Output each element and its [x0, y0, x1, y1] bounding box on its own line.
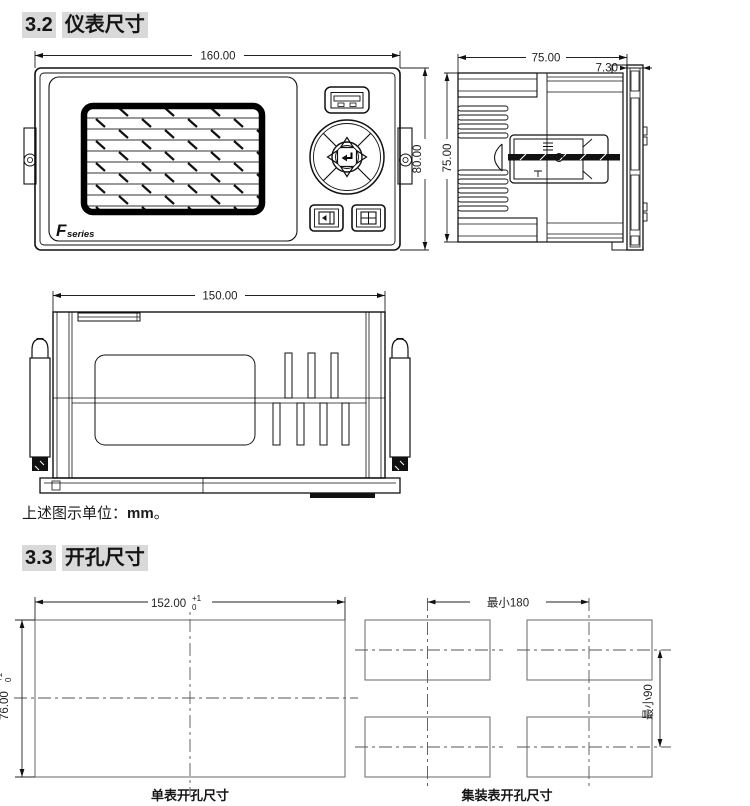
terminal-fins [458, 106, 508, 211]
vent-slots-lower [273, 403, 349, 445]
unit-note-suffix: 。 [154, 505, 169, 522]
cutout-width-label: 152.00 [151, 598, 186, 610]
section-title: 仪表尺寸 [62, 12, 148, 38]
front-view-drawing: 160.00 80.00 F series [20, 40, 440, 265]
mount-screw-head [495, 144, 503, 171]
bottom-width-dimension: 150.00 [53, 287, 385, 312]
unit-note-unit: mm [127, 505, 154, 522]
side-depth-label: 75.00 [532, 53, 561, 65]
multi-cutout-drawing: 最小180 最小90 集装表开孔尺寸 [352, 590, 750, 806]
manual-page: 3.2仪表尺寸 160.00 80.00 [0, 0, 750, 806]
cutout-height-label: 76.00 [0, 691, 11, 720]
cutout-height-dimension: 76.00 +1 0 [0, 620, 35, 777]
section-title: 开孔尺寸 [62, 545, 148, 571]
brand-logo-f: F [56, 221, 67, 240]
front-height-label: 80.00 [412, 145, 424, 174]
page-button-icon [322, 215, 327, 221]
grid-button [352, 205, 385, 231]
side-view-drawing: 75.00 7.30 75.00 [440, 40, 670, 270]
side-height-label: 75.00 [442, 144, 454, 173]
section-3-2-heading: 3.2仪表尺寸 [22, 8, 148, 37]
lcd-screen [84, 106, 262, 212]
section-number: 3.2 [22, 12, 56, 38]
min-width-label: 最小180 [487, 597, 529, 610]
vent-slots-upper [285, 353, 338, 398]
top-slot [78, 313, 140, 321]
single-cutout-caption: 单表开孔尺寸 [151, 788, 229, 803]
min-height-label: 最小90 [642, 684, 655, 720]
bottom-view-drawing: 150.00 [20, 280, 440, 505]
base-plate [40, 478, 400, 498]
bottom-panel-window [95, 355, 255, 445]
cutout-width-dimension: 152.00 +1 0 [35, 593, 345, 620]
page-button [310, 205, 343, 231]
front-width-dimension: 160.00 [35, 47, 400, 68]
left-bracket [30, 339, 50, 472]
section-3-3-heading: 3.3开孔尺寸 [22, 541, 148, 570]
front-width-label: 160.00 [200, 51, 235, 63]
front-height-dimension: 80.00 [400, 68, 429, 250]
enter-key-icon [342, 153, 352, 162]
mount-bracket [495, 135, 621, 183]
bottom-body [53, 312, 385, 478]
multi-cutout-caption: 集装表开孔尺寸 [460, 788, 552, 803]
right-bracket [390, 339, 410, 472]
usb-port [325, 87, 369, 113]
unit-note: 上述图示单位：mm。 [22, 502, 169, 523]
bottom-width-label: 150.00 [202, 291, 237, 303]
grid-button-icon [361, 212, 376, 224]
brand-logo-series: series [67, 229, 94, 240]
tolerance-zero: 0 [192, 603, 197, 612]
section-number: 3.3 [22, 545, 56, 571]
side-height-dimension: 75.00 [441, 73, 458, 242]
min-spacing-width-dimension: 最小180 [428, 593, 590, 610]
tolerance-zero: 0 [4, 677, 13, 682]
unit-note-prefix: 上述图示单位： [22, 505, 127, 522]
nav-pad [310, 120, 384, 194]
tolerance-plus: +1 [192, 594, 202, 603]
single-cutout-drawing: 152.00 +1 0 76.00 +1 0 单表开孔尺寸 [0, 590, 370, 806]
